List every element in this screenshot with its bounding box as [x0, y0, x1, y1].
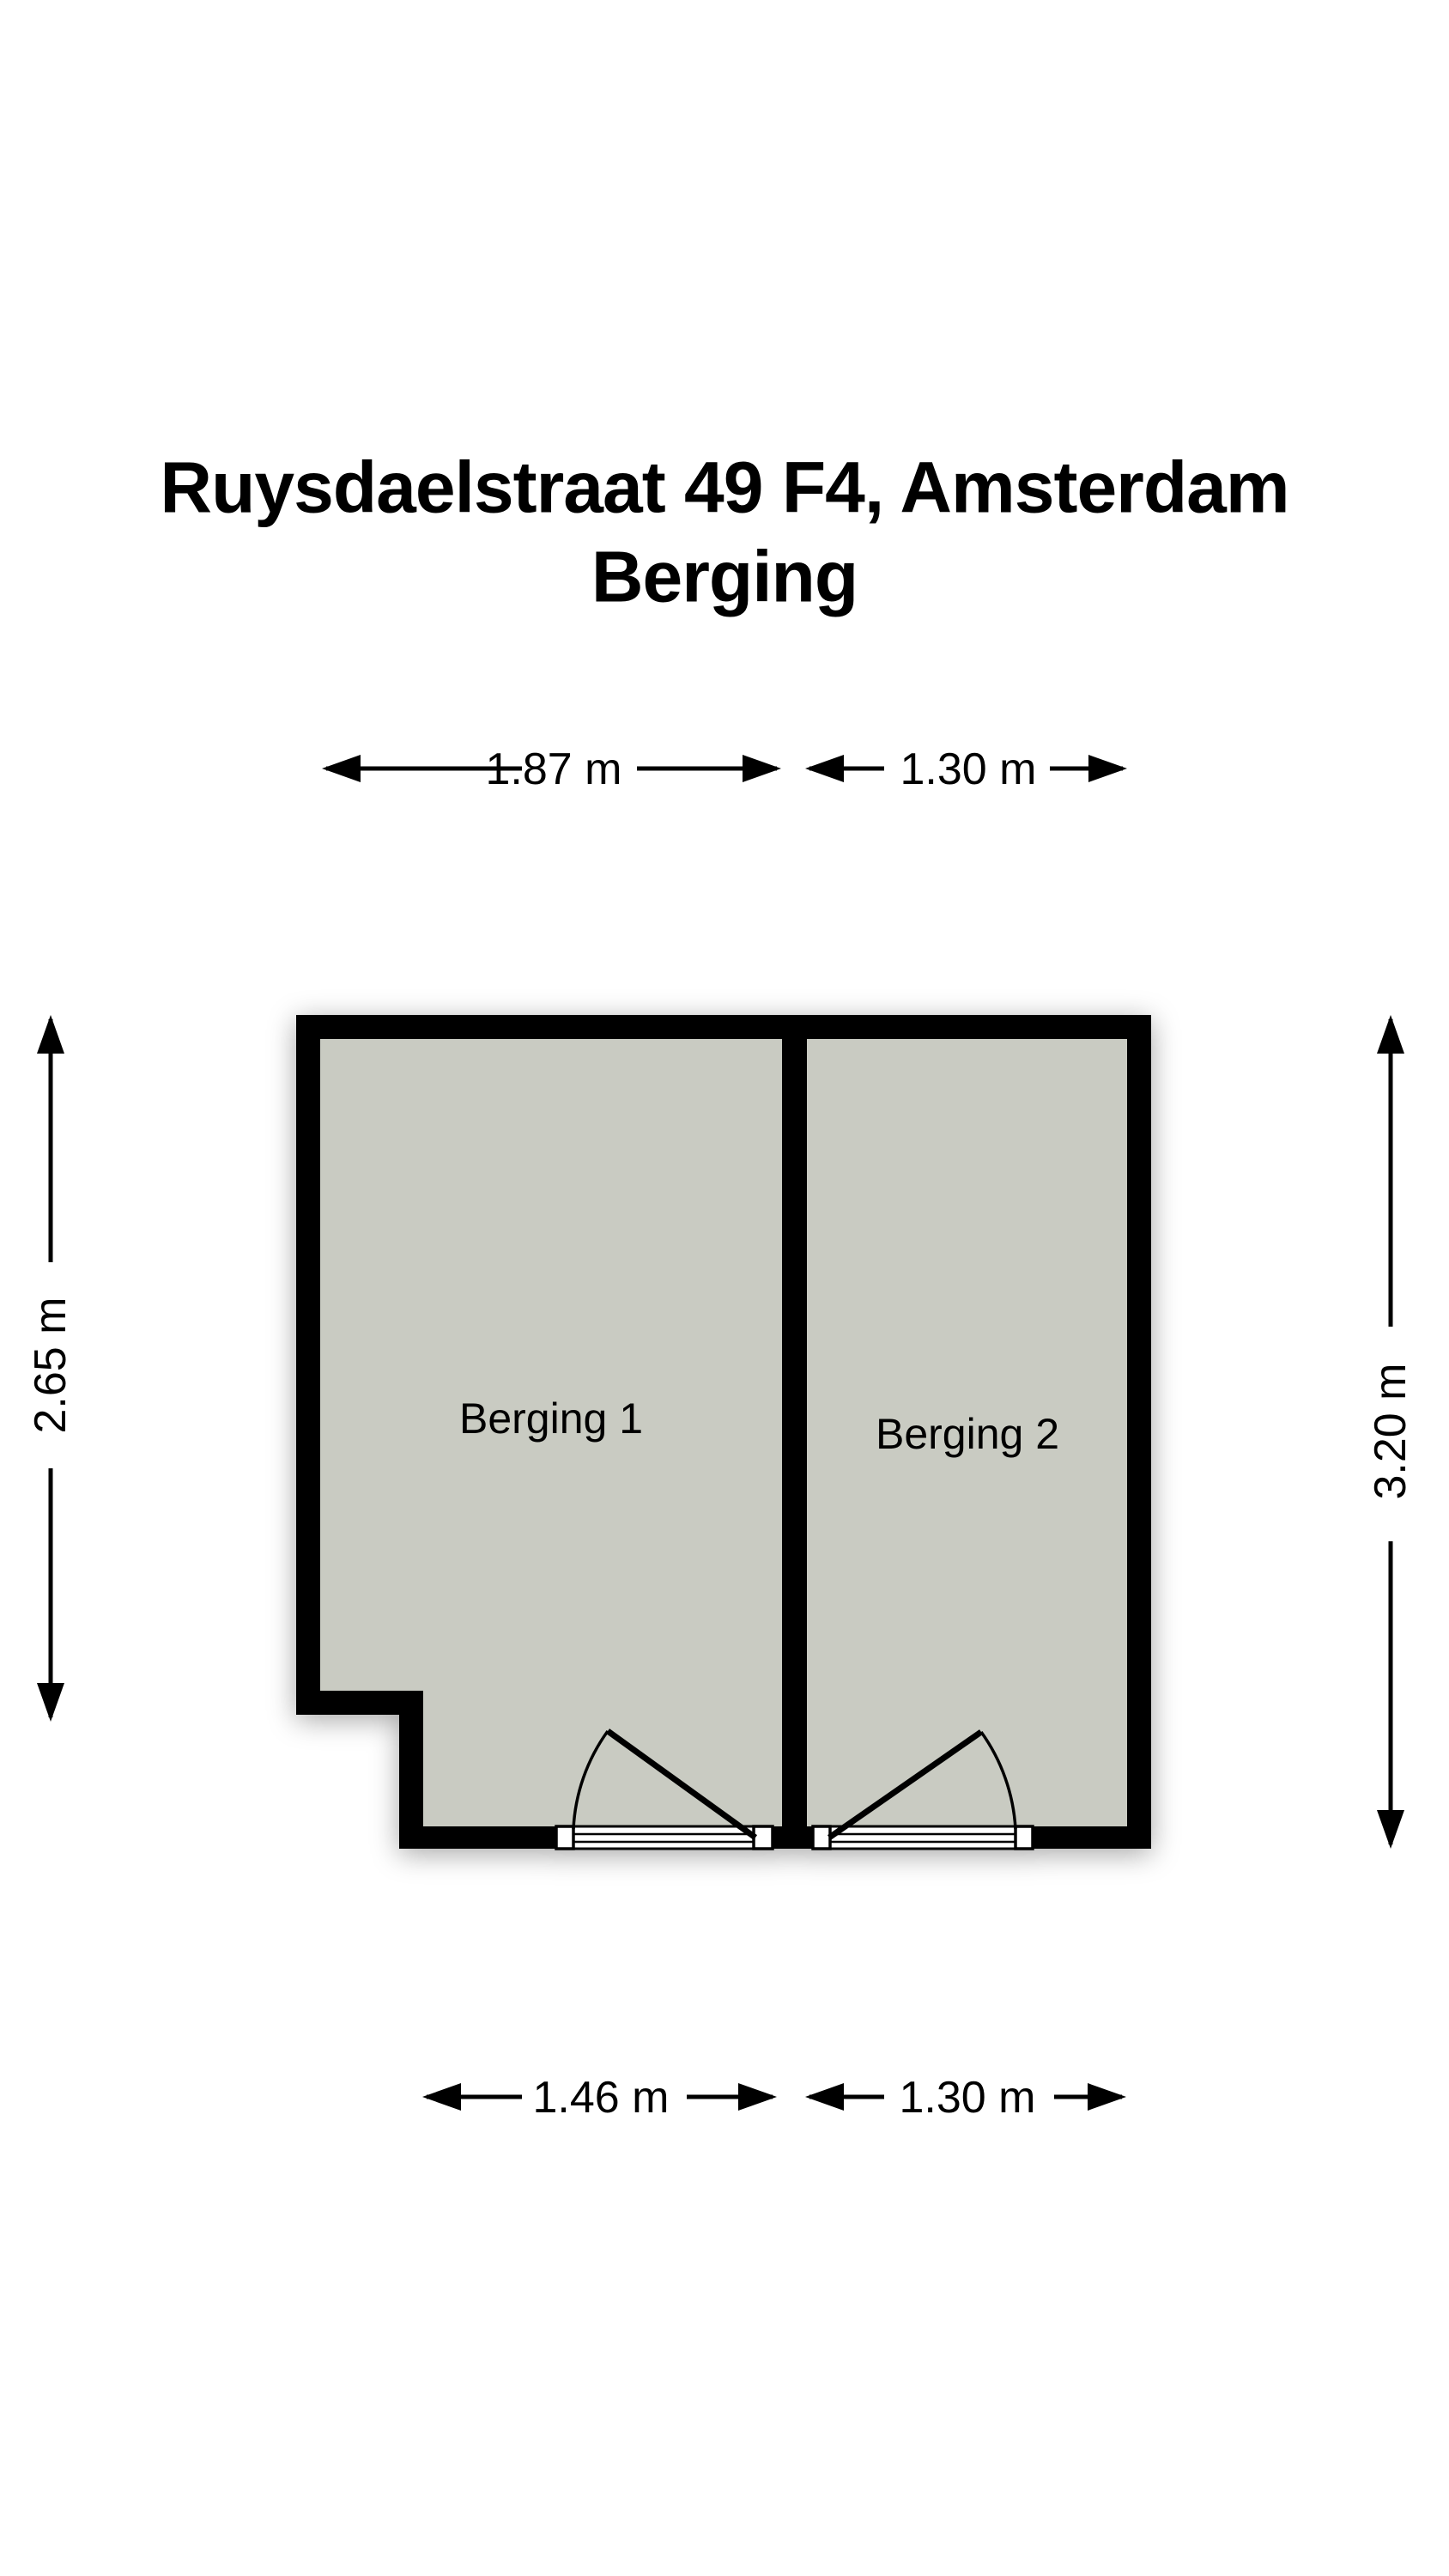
room-label-berging-1: Berging 1: [459, 1394, 643, 1443]
dimension-label-right-side: 3.20 m: [1365, 1364, 1416, 1500]
door2-left-post: [813, 1826, 830, 1849]
door2-right-post: [1016, 1826, 1033, 1849]
wall-right: [1127, 1015, 1151, 1849]
wall-notch-horizontal: [296, 1691, 423, 1715]
dimension-label-top-right: 1.30 m: [900, 744, 1037, 795]
arrowhead-down-icon: [1377, 1810, 1404, 1849]
dimension-label-left-side: 2.65 m: [25, 1297, 76, 1434]
arrowhead-right-icon: [1088, 755, 1127, 782]
arrowhead-right-icon: [738, 2083, 777, 2111]
arrowhead-left-icon: [422, 2083, 461, 2111]
wall-bottom-right-segment: [1016, 1826, 1151, 1849]
arrowhead-right-icon: [743, 755, 781, 782]
wall-divider: [782, 1039, 807, 1826]
dimension-label-top-left: 1.87 m: [486, 744, 622, 795]
arrowhead-up-icon: [1377, 1015, 1404, 1054]
wall-bottom-left-segment: [399, 1826, 556, 1849]
arrowhead-right-icon: [1088, 2083, 1126, 2111]
arrowhead-up-icon: [37, 1015, 64, 1054]
dimension-label-bottom-right: 1.30 m: [900, 2072, 1036, 2123]
door1-right-post: [754, 1826, 773, 1849]
door1-sill: [573, 1826, 754, 1849]
arrowhead-left-icon: [322, 755, 361, 782]
arrowhead-left-icon: [805, 2083, 844, 2111]
dimension-label-bottom-left: 1.46 m: [533, 2072, 670, 2123]
door1-left-post: [556, 1826, 573, 1849]
floorplan-page: { "title": { "line1": "Ruysdaelstraat 49…: [0, 0, 1449, 2576]
wall-left: [296, 1015, 320, 1715]
wall-bottom-center-segment: [773, 1826, 813, 1849]
wall-top: [296, 1015, 1151, 1039]
arrowhead-left-icon: [805, 755, 844, 782]
room-label-berging-2: Berging 2: [876, 1409, 1059, 1459]
floor-plan: [0, 0, 1449, 2576]
arrowhead-down-icon: [37, 1683, 64, 1722]
door2-sill: [830, 1826, 1016, 1849]
